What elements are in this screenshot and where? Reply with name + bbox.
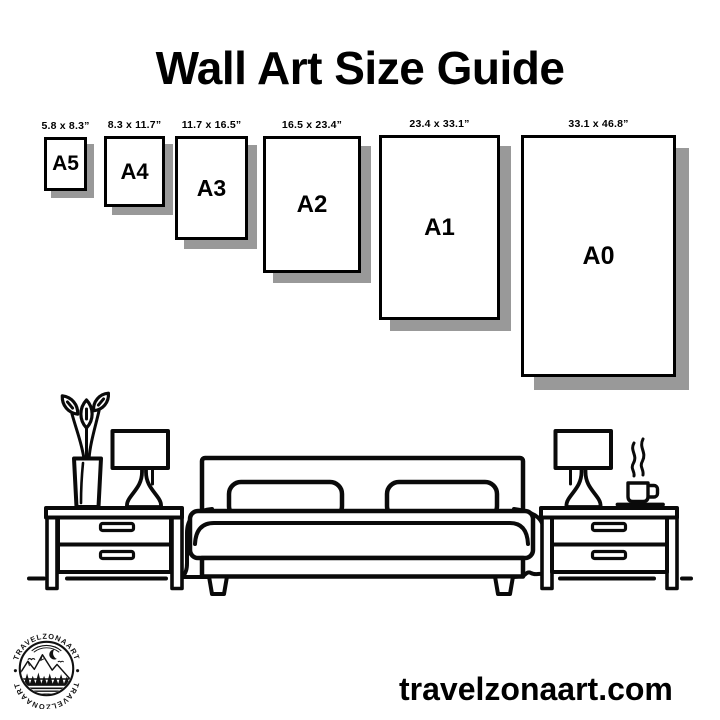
nightstand-top [541,508,677,518]
bed-leg-left [209,577,227,595]
nightstand-right-icon [541,508,677,589]
flower-vase-icon [59,390,113,507]
poster-frame-a2: A2 [263,136,361,273]
nightstand-left-icon [46,508,182,589]
bed-icon [183,458,545,594]
bedroom-illustration [0,385,720,600]
steam-icon [632,443,635,476]
size-dimensions-label: 16.5 x 23.4” [282,119,342,131]
poster-frame-a0: A0 [521,135,676,377]
size-card-a2: 16.5 x 23.4” A2 [263,136,361,273]
size-code-label: A0 [583,242,615,271]
table-lamp-left-icon [113,431,169,507]
size-code-label: A3 [197,175,226,202]
poster-frame-a5: A5 [44,137,87,191]
poster-frame-a4: A4 [104,136,165,207]
bed-base [202,558,523,577]
coffee-cup-icon [618,439,664,505]
website-url: travelzonaart.com [399,671,673,708]
size-code-label: A1 [424,214,455,242]
size-dimensions-label: 11.7 x 16.5” [182,119,242,131]
size-card-a0: 33.1 x 46.8” A0 [521,135,676,377]
size-dimensions-label: 33.1 x 46.8” [568,118,628,130]
badge-dot [14,669,17,672]
badge-dot [76,669,79,672]
size-card-a5: 5.8 x 8.3” A5 [44,137,87,191]
size-dimensions-label: 23.4 x 33.1” [409,118,469,130]
bed-leg-right [495,577,513,595]
size-code-label: A2 [297,191,328,219]
size-card-a3: 11.7 x 16.5” A3 [175,136,248,240]
lamp-shade [556,431,612,468]
steam-icon [641,439,644,475]
brand-logo-badge: TRAVELZONAART TRAVELZONAART [6,628,87,709]
size-dimensions-label: 8.3 x 11.7” [108,119,162,131]
table-lamp-right-icon [556,431,612,507]
poster-frame-a1: A1 [379,135,500,320]
nightstand-top [46,508,182,518]
size-code-label: A4 [120,159,148,185]
lamp-shade [113,431,169,468]
vase-body [74,459,101,508]
nightstand-leg [172,518,182,589]
nightstand-leg [47,518,57,589]
size-code-label: A5 [52,152,79,176]
wall-art-size-guide-page: Wall Art Size Guide 5.8 x 8.3” A5 8.3 x … [0,0,720,720]
duvet [190,511,533,558]
size-dimensions-label: 5.8 x 8.3” [41,120,89,132]
poster-frame-a3: A3 [175,136,248,240]
page-title: Wall Art Size Guide [0,44,720,92]
cup-body [628,483,648,502]
size-card-a1: 23.4 x 33.1” A1 [379,135,500,320]
size-card-a4: 8.3 x 11.7” A4 [104,136,165,207]
